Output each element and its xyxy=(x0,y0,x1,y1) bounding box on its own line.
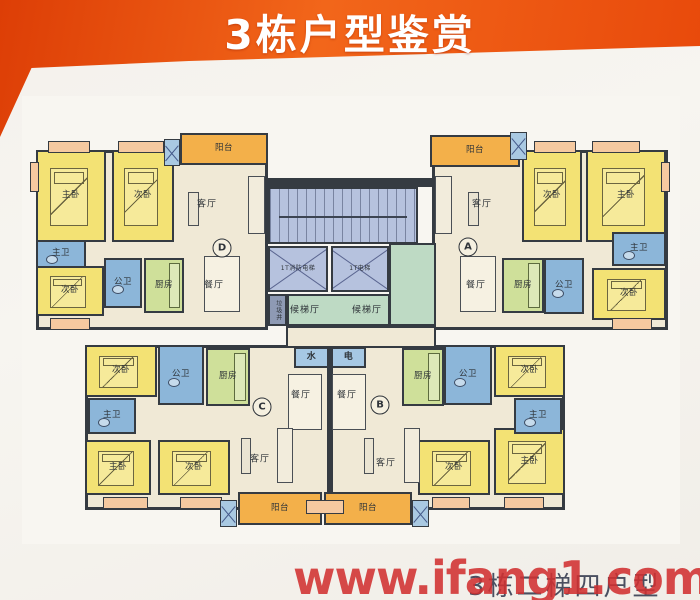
window-box xyxy=(48,141,90,153)
unit-d-kitchen-label: 厨房 xyxy=(155,281,173,290)
stairwell xyxy=(268,187,418,244)
unit-b-bedroom-2-label: 次卧 xyxy=(520,366,538,375)
unit-a-sofa xyxy=(435,176,452,234)
elevator-lobby-east xyxy=(389,243,436,326)
unit-a-common-bath-label: 公卫 xyxy=(555,281,573,290)
ac-platform xyxy=(164,139,180,166)
unit-a-master-bedroom: 主卧 xyxy=(586,150,666,242)
unit-d-common-bath: 公卫 xyxy=(104,258,142,308)
unit-d-kitchen: 厨房 xyxy=(144,258,184,313)
unit-a-kitchen-label: 厨房 xyxy=(514,281,532,290)
unit-d-balcony: 阳台 xyxy=(180,133,268,165)
electric-meter-room: 电 xyxy=(331,347,366,368)
unit-d-sofa xyxy=(248,176,265,234)
unit-a-bedroom-2-label: 次卧 xyxy=(543,191,561,200)
unit-c-master-bath-label: 主卫 xyxy=(103,411,121,420)
passenger-elevator-label: 1T电梯 xyxy=(349,266,370,273)
garbage-chute-label: 垃圾井 xyxy=(274,300,281,321)
unit-c-bedroom-2-label: 次卧 xyxy=(112,366,130,375)
unit-c-dining-label: 餐厅 xyxy=(291,388,311,401)
unit-d-dining-label: 餐厅 xyxy=(204,278,224,291)
lobby-label-west: 候梯厅 xyxy=(290,303,320,316)
window-box xyxy=(432,497,470,509)
unit-d-master-bedroom-label: 主卧 xyxy=(62,191,80,200)
unit-b-balcony-label: 阳台 xyxy=(359,504,377,513)
fire-elevator: 1T消防电梯 xyxy=(268,246,328,292)
unit-badge-d: D xyxy=(213,239,232,258)
unit-d-master-bath: 主卫 xyxy=(36,240,86,268)
unit-badge-c: C xyxy=(253,398,272,417)
unit-d-bedroom-3-label: 次卧 xyxy=(61,286,79,295)
unit-b-kitchen: 厨房 xyxy=(402,348,444,406)
unit-d-master-bath-label: 主卫 xyxy=(52,249,70,258)
unit-c-balcony-label: 阳台 xyxy=(271,504,289,513)
window-box xyxy=(592,141,640,153)
watermark-text: www.ifang1.com xyxy=(293,551,700,600)
water-meter-room: 水 xyxy=(294,347,329,368)
unit-c-living-label: 客厅 xyxy=(250,452,270,465)
unit-b-sofa xyxy=(404,428,420,483)
unit-a-bedroom-3-label: 次卧 xyxy=(620,289,638,298)
unit-badge-a: A xyxy=(459,238,478,257)
unit-a-balcony: 阳台 xyxy=(430,135,520,167)
water-meter-room-label: 水 xyxy=(307,353,317,363)
unit-c-kitchen: 厨房 xyxy=(206,348,250,406)
unit-c-common-bath: 公卫 xyxy=(158,345,204,405)
unit-d-bedroom-3: 次卧 xyxy=(36,266,104,316)
unit-b-dining-table xyxy=(332,374,366,430)
unit-d-master-bedroom: 主卧 xyxy=(36,150,106,242)
unit-b-master-bedroom: 主卧 xyxy=(494,428,565,495)
window-box xyxy=(180,497,222,509)
unit-c-master-bedroom-label: 主卧 xyxy=(109,463,127,472)
unit-c-bedroom-3-label: 次卧 xyxy=(185,463,203,472)
ac-platform xyxy=(412,500,429,527)
window-box xyxy=(50,318,90,330)
unit-c-kitchen-label: 厨房 xyxy=(219,372,237,381)
window-box xyxy=(534,141,576,153)
unit-c-bedroom-2: 次卧 xyxy=(85,345,157,397)
unit-c-master-bath: 主卫 xyxy=(88,398,136,434)
passenger-elevator: 1T电梯 xyxy=(331,246,389,292)
garbage-chute: 垃圾井 xyxy=(268,294,287,326)
unit-c-dining-table xyxy=(288,374,322,430)
unit-a-bedroom-2: 次卧 xyxy=(522,150,582,242)
unit-d-bedroom-2-label: 次卧 xyxy=(134,191,152,200)
unit-c-master-bedroom: 主卧 xyxy=(85,440,151,495)
unit-b-master-bedroom-label: 主卧 xyxy=(520,457,538,466)
unit-a-kitchen: 厨房 xyxy=(502,258,544,313)
window-box xyxy=(661,162,670,192)
window-box xyxy=(306,500,344,514)
unit-a-balcony-label: 阳台 xyxy=(466,146,484,155)
unit-b-kitchen-label: 厨房 xyxy=(414,372,432,381)
unit-b-bedroom-2: 次卧 xyxy=(494,345,565,397)
unit-d-balcony-label: 阳台 xyxy=(215,144,233,153)
unit-b-common-bath-label: 公卫 xyxy=(459,370,477,379)
unit-d-common-bath-label: 公卫 xyxy=(114,278,132,287)
unit-b-master-bath: 主卫 xyxy=(514,398,562,434)
unit-c-bedroom-3: 次卧 xyxy=(158,440,230,495)
window-box xyxy=(30,162,39,192)
unit-badge-b: B xyxy=(371,396,390,415)
core-corridor xyxy=(286,326,436,348)
unit-d-living-label: 客厅 xyxy=(197,197,217,210)
unit-b-tv-cabinet xyxy=(364,438,374,474)
unit-a-master-bedroom-label: 主卧 xyxy=(617,191,635,200)
unit-b-bedroom-3: 次卧 xyxy=(418,440,490,495)
unit-a-common-bath: 公卫 xyxy=(544,258,584,314)
unit-a-master-bath-label: 主卫 xyxy=(630,244,648,253)
unit-b-living-label: 客厅 xyxy=(376,456,396,469)
unit-b-dining-label: 餐厅 xyxy=(337,388,357,401)
floorplan-page: 3栋户型鉴赏 1T消防电梯1T电梯垃圾井水电主卧次卧次卧次卧主卧次卧次卧主卧次卧… xyxy=(0,0,700,600)
window-box xyxy=(612,318,652,330)
unit-b-master-bath-label: 主卫 xyxy=(529,411,547,420)
fire-elevator-label: 1T消防电梯 xyxy=(281,266,315,273)
window-box xyxy=(504,497,544,509)
unit-b-bedroom-3-label: 次卧 xyxy=(445,463,463,472)
electric-meter-room-label: 电 xyxy=(344,353,354,363)
unit-a-master-bath: 主卫 xyxy=(612,232,666,266)
unit-a-dining-label: 餐厅 xyxy=(466,278,486,291)
unit-b-common-bath: 公卫 xyxy=(444,345,492,405)
lobby-label-east: 候梯厅 xyxy=(352,303,382,316)
window-box xyxy=(118,141,164,153)
window-box xyxy=(103,497,148,509)
page-title: 3栋户型鉴赏 xyxy=(0,1,700,61)
ac-platform xyxy=(220,500,237,527)
core-top-wall xyxy=(268,178,436,187)
unit-a-bedroom-3: 次卧 xyxy=(592,268,666,320)
unit-c-common-bath-label: 公卫 xyxy=(172,370,190,379)
unit-a-living-label: 客厅 xyxy=(472,197,492,210)
ac-platform xyxy=(510,132,527,160)
unit-c-sofa xyxy=(277,428,293,483)
